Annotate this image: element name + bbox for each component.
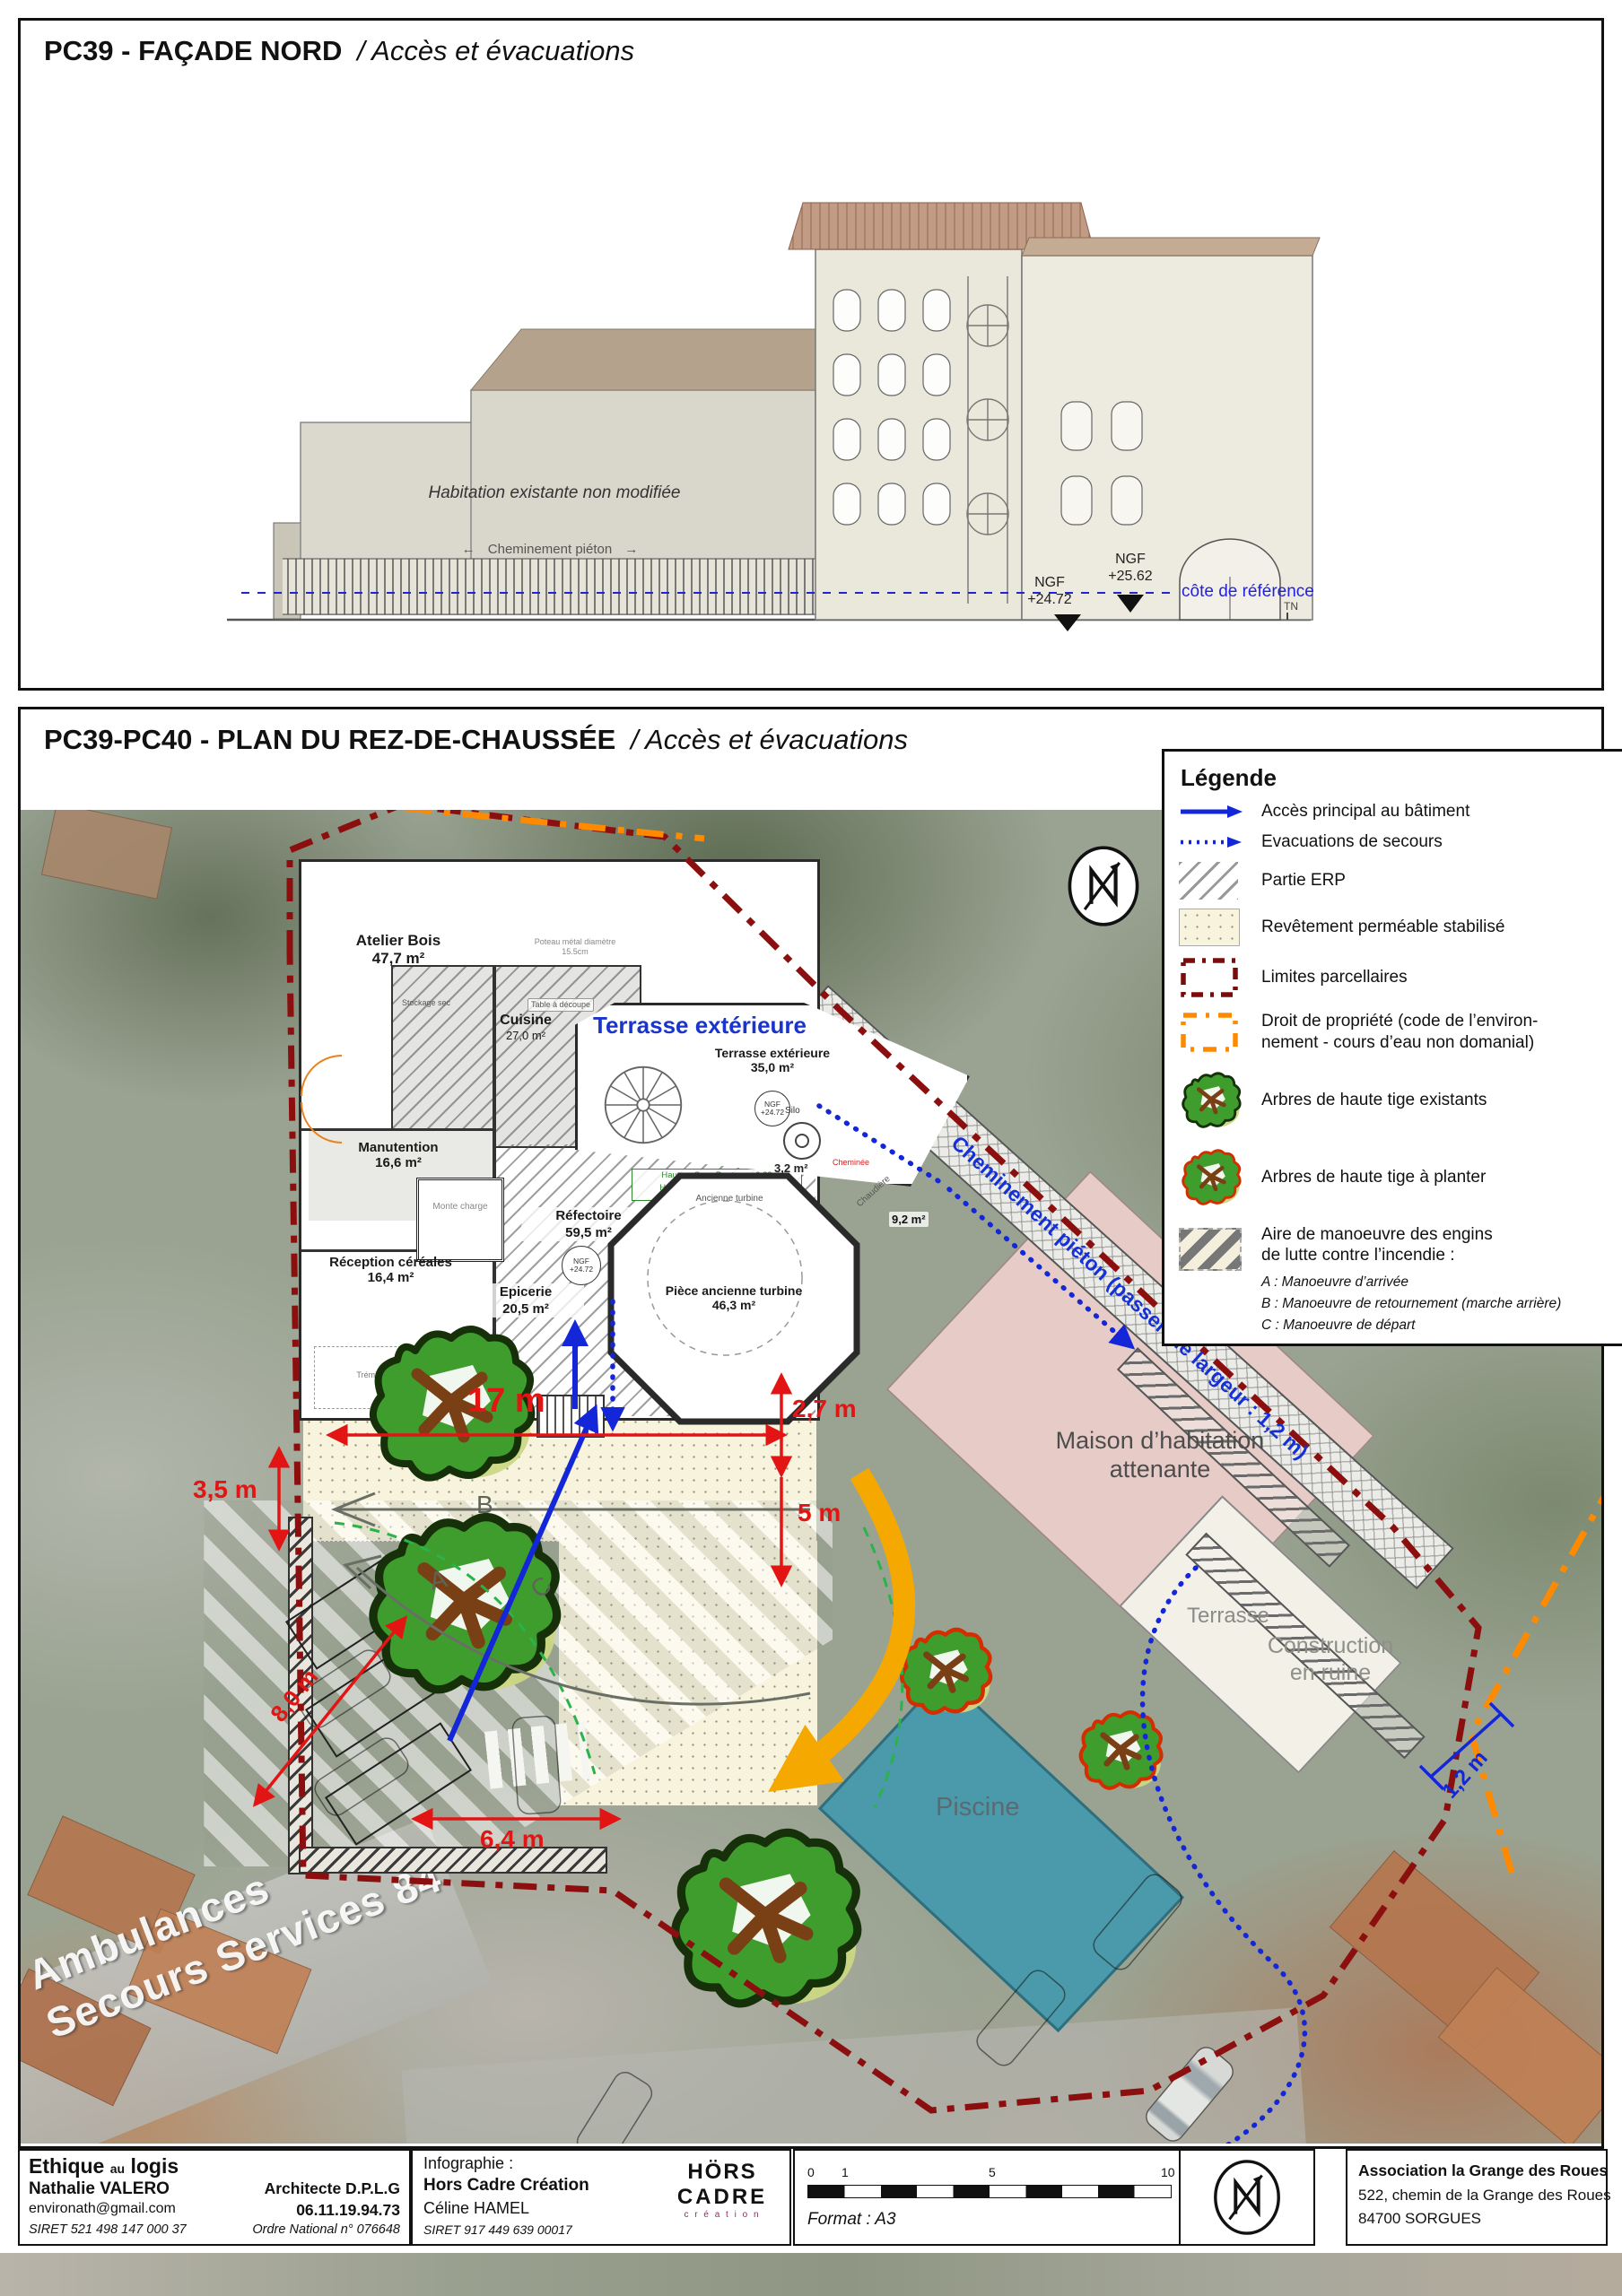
tree-to-plant: [1075, 1705, 1166, 1796]
tn-label: TN: [1284, 600, 1298, 613]
permit-sheet: PC39 - FAÇADE NORD / Accès et évacuation…: [0, 0, 1622, 2296]
legend: Légende Accès principal au bâtiment Evac…: [1162, 749, 1622, 1346]
architect-ordre: Ordre National n° 076648: [252, 2222, 400, 2237]
infographics-block: Infographie : Hors Cadre Création Céline…: [411, 2149, 791, 2246]
erp-hatch-icon: [1179, 862, 1261, 900]
dotted-arrow-icon: [1179, 835, 1261, 849]
scale-bar: [807, 2185, 1172, 2198]
plan-title-main: PC39-PC40 - PLAN DU REZ-DE-CHAUSSÉE: [44, 724, 615, 755]
parcel-line-icon: [1179, 955, 1261, 1000]
legend-item-tree-plant: Arbres de haute tige à planter: [1179, 1145, 1622, 1210]
room-atelier: Atelier Bois 47,7 m²: [318, 932, 479, 968]
letter-b: B: [476, 1490, 493, 1519]
architect-email: environath@gmail.com: [29, 2201, 176, 2217]
existing-tree: [360, 1500, 568, 1709]
manoeuvre-swatch-icon: [1179, 1224, 1261, 1271]
room-terrace: Terrasse extérieure 35,0 m²: [692, 1046, 853, 1074]
stairs: [536, 1395, 605, 1438]
adjoining-house-label: Maison d’habitation attenante: [1025, 1427, 1295, 1484]
room-reception: Réception céréales 16,4 m²: [312, 1255, 469, 1285]
scale-tick-5: 5: [989, 2165, 996, 2179]
legend-item-permeable: Revêtement perméable stabilisé: [1179, 909, 1622, 946]
silo-circle: [783, 1122, 821, 1160]
legend-item-property: Droit de propriété (code de l’environ- n…: [1179, 1009, 1622, 1056]
client-city: 84700 SORGUES: [1358, 2210, 1481, 2228]
studio-siret: SIRET 917 449 639 00017: [423, 2222, 572, 2237]
room-epicerie: Epicerie 20,5 m²: [467, 1283, 584, 1318]
ngf-low-marker: NGF +24.72: [1018, 575, 1081, 609]
silo-label: Silo: [785, 1106, 800, 1117]
plan-title: PC39-PC40 - PLAN DU REZ-DE-CHAUSSÉE / Ac…: [44, 724, 908, 756]
designer-name: Céline HAMEL: [423, 2199, 529, 2218]
architect-block: Ethique au logis Nathalie VALERO environ…: [18, 2149, 411, 2246]
arrow-left-icon: ←: [462, 542, 475, 557]
facade-drawing: [21, 21, 1601, 686]
dim-5m: 5 m: [798, 1499, 841, 1527]
legend-item-evac: Evacuations de secours: [1179, 831, 1622, 853]
hors-cadre-logo: HÖRS CADRE c r é a t i o n: [664, 2160, 780, 2220]
legend-item-access: Accès principal au bâtiment: [1179, 801, 1622, 822]
facade-walkway-label: ← Cheminement piéton →: [424, 542, 676, 558]
door-arc: [301, 1102, 342, 1144]
legend-item-tree-exist: Arbres de haute tige existants: [1179, 1068, 1622, 1133]
cutting-table-label: Table à découpe: [528, 998, 594, 1012]
legend-item-parcel: Limites parcellaires: [1179, 955, 1622, 1000]
dim-2-7m: 2,7 m: [792, 1395, 857, 1423]
chimney-label: Cheminée: [833, 1158, 869, 1168]
client-block: Association la Grange des Roues 522, che…: [1346, 2149, 1608, 2246]
dim-3-5m: 3,5 m: [193, 1475, 257, 1504]
solid-arrow-icon: [1179, 804, 1261, 819]
storage-label: Stockage sec: [402, 998, 450, 1008]
ngf-circle: NGF +24.72: [562, 1246, 601, 1285]
boiler-room-area: 9,2 m²: [889, 1212, 929, 1227]
legend-item-manoeuvre: Aire de manoeuvre des engins de lutte co…: [1179, 1224, 1622, 1337]
pool-label: Piscine: [936, 1792, 1020, 1822]
architect-name: Nathalie VALERO: [29, 2179, 170, 2199]
facade-walkway-text: Cheminement piéton: [488, 542, 612, 557]
spiral-stair-icon: [600, 1062, 686, 1148]
room-manutention: Manutention 16,6 m²: [318, 1140, 479, 1170]
tree-to-plant-icon: [1179, 1145, 1261, 1210]
format-label: Format : A3: [807, 2210, 896, 2230]
terrace-heading: Terrasse extérieure: [593, 1012, 807, 1039]
architect-title: Architecte D.P.L.G: [265, 2179, 400, 2198]
tree-to-plant: [895, 1622, 996, 1722]
firm-name: Ethique: [29, 2154, 104, 2178]
property-line-icon: [1179, 1009, 1261, 1056]
architect-phone: 06.11.19.94.73: [296, 2201, 400, 2220]
old-turbine-label: Ancienne turbine: [649, 1194, 810, 1205]
post-note: Poteau métal diamètre 15.5cm: [503, 937, 647, 956]
car: [512, 1717, 560, 1814]
scale-tick-1: 1: [842, 2165, 849, 2179]
silo-inner: [795, 1134, 809, 1148]
client-address: 522, chemin de la Grange des Roues: [1358, 2187, 1611, 2205]
facade-panel: PC39 - FAÇADE NORD / Accès et évacuation…: [18, 18, 1604, 691]
ngf-high-marker: NGF +25.62: [1099, 552, 1162, 586]
plan-panel: PC39-PC40 - PLAN DU REZ-DE-CHAUSSÉE / Ac…: [18, 707, 1604, 2149]
scale-block: 0 1 5 10 m Format : A3: [793, 2149, 1182, 2246]
terrace-structure-label: Terrasse: [1187, 1604, 1269, 1629]
north-arrow-icon: [1208, 2158, 1286, 2237]
room-turbine: Pièce ancienne turbine 46,3 m²: [658, 1283, 810, 1312]
existing-tree: [662, 1816, 868, 2022]
scale-tick-0: 0: [807, 2165, 815, 2179]
client-name: Association la Grange des Roues: [1358, 2161, 1608, 2180]
wall-hatch: [299, 1847, 607, 1874]
existing-tree-icon: [1179, 1068, 1261, 1133]
dim-6-4m: 6,4 m: [480, 1825, 545, 1854]
legend-title: Légende: [1181, 764, 1622, 792]
infographie-label: Infographie :: [423, 2154, 513, 2173]
room-cuisine: Cuisine 27,0 m²: [463, 1013, 589, 1042]
legend-item-erp: Partie ERP: [1179, 862, 1622, 900]
north-block: [1179, 2149, 1315, 2246]
architect-siret: SIRET 521 498 147 000 37: [29, 2222, 187, 2237]
ruin-label: Construction en ruine: [1241, 1633, 1420, 1686]
aerial-strip: [0, 2253, 1622, 2296]
arrow-right-icon: →: [624, 542, 638, 557]
silo-area: 3,2 m²: [774, 1161, 808, 1175]
freight-elevator: Monte charge: [416, 1178, 504, 1262]
door-arc: [301, 1055, 342, 1096]
dim-17m: 17 m: [467, 1382, 545, 1421]
stipple-swatch-icon: [1179, 909, 1261, 946]
plan-title-sub: / Accès et évacuations: [631, 724, 908, 755]
studio-name: Hors Cadre Création: [423, 2176, 589, 2196]
facade-building-label: Habitation existante non modifiée: [406, 483, 702, 503]
